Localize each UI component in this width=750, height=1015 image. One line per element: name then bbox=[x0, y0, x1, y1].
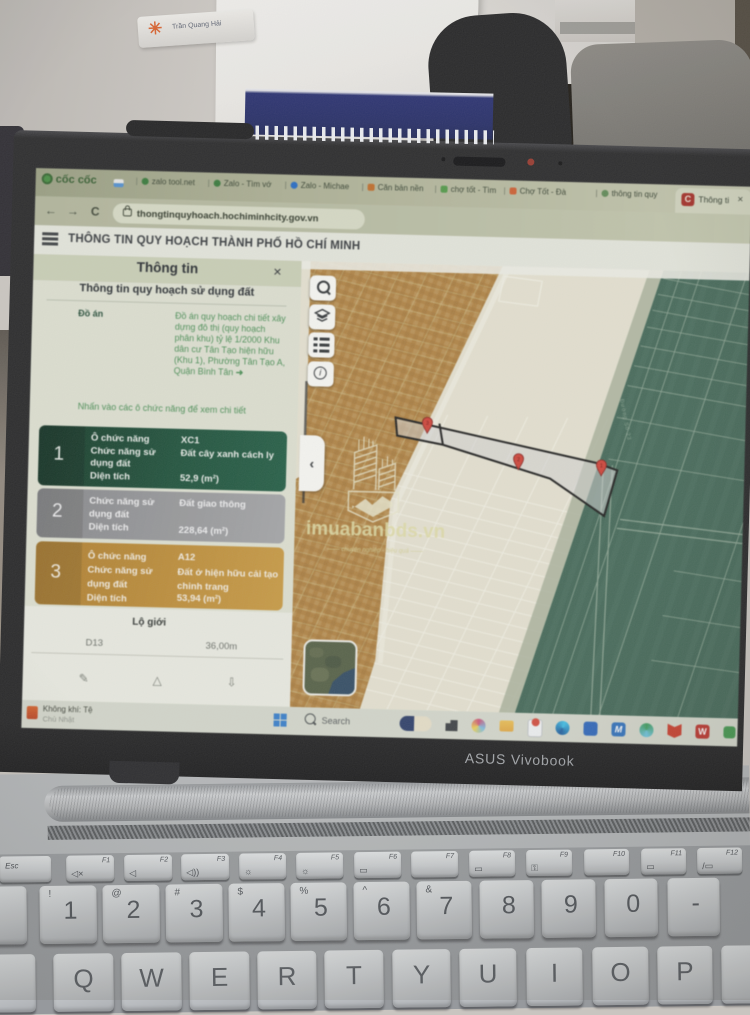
svg-text:1: 1 bbox=[600, 463, 603, 469]
svg-text:imuabanbds.vn: imuabanbds.vn bbox=[306, 518, 446, 543]
svg-text:3: 3 bbox=[426, 421, 429, 427]
svg-text:2: 2 bbox=[517, 457, 520, 463]
